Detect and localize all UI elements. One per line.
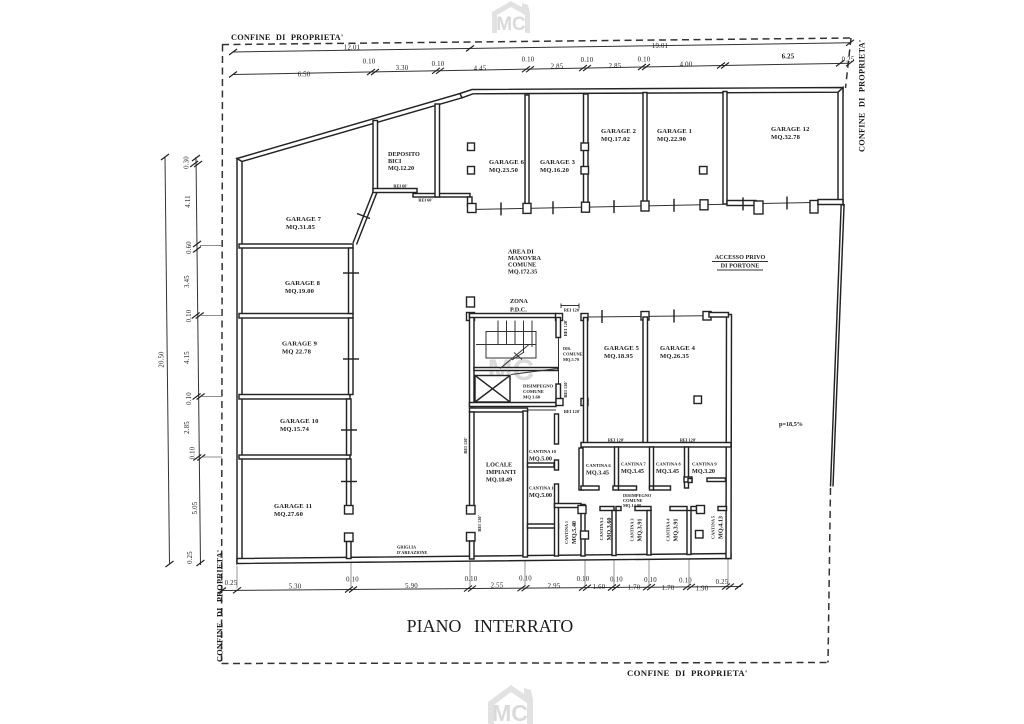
svg-text:ACCESSO PRIVO: ACCESSO PRIVO [715,254,766,261]
svg-text:MQ.16.20: MQ.16.20 [540,167,570,174]
svg-text:COMUNE: COMUNE [563,352,583,357]
svg-text:1.70: 1.70 [662,585,675,592]
svg-text:5.90: 5.90 [405,583,418,590]
svg-text:0.10: 0.10 [638,57,651,64]
svg-text:2.85: 2.85 [551,64,564,71]
svg-text:MQ.17.02: MQ.17.02 [601,136,631,143]
svg-text:REI 120': REI 120' [477,515,482,531]
svg-text:MC: MC [496,14,526,35]
svg-text:MQ.15.74: MQ.15.74 [280,426,310,433]
svg-text:1.90: 1.90 [696,586,709,593]
svg-text:CONFINE DI PROPRIETA': CONFINE DI PROPRIETA' [627,668,748,678]
svg-text:GRIGLIA: GRIGLIA [397,545,417,550]
svg-text:4.00: 4.00 [680,62,693,69]
svg-text:p=18,5%: p=18,5% [779,421,803,428]
svg-text:MQ.3.20: MQ.3.20 [692,468,715,475]
svg-text:MQ.19.00: MQ.19.00 [285,288,315,295]
svg-text:2.95: 2.95 [548,583,561,590]
svg-text:MQ.3.91: MQ.3.91 [673,518,680,541]
svg-text:MQ.5.70: MQ.5.70 [563,357,579,362]
svg-text:0.10: 0.10 [679,578,692,585]
svg-text:0.10: 0.10 [577,576,590,583]
svg-text:19.01: 19.01 [652,43,668,50]
svg-text:MQ.3.45: MQ.3.45 [621,468,644,475]
svg-text:1.60: 1.60 [593,584,606,591]
svg-text:PIANO INTERRATO: PIANO INTERRATO [407,616,574,636]
svg-text:12.01: 12.01 [344,45,360,52]
svg-text:BICI: BICI [388,158,402,165]
svg-text:0.10: 0.10 [363,59,376,66]
svg-text:GARAGE 12: GARAGE 12 [771,126,810,133]
svg-text:MQ.5.00: MQ.5.00 [529,492,552,499]
svg-text:GARAGE 5: GARAGE 5 [604,345,640,352]
svg-text:MQ 3.60: MQ 3.60 [523,395,541,400]
svg-text:REI 120': REI 120' [608,438,624,443]
svg-text:CANTINA 9: CANTINA 9 [692,462,717,467]
svg-text:GARAGE 2: GARAGE 2 [601,128,637,135]
svg-text:0.25: 0.25 [842,57,855,64]
svg-text:CANTINA 6: CANTINA 6 [586,463,611,468]
svg-text:0.60: 0.60 [186,241,193,254]
svg-text:6.25: 6.25 [782,54,795,61]
svg-text:DISIMPEGNO: DISIMPEGNO [523,384,554,389]
svg-text:0.10: 0.10 [644,577,657,584]
svg-text:MQ.172.35: MQ.172.35 [508,269,537,276]
svg-text:GARAGE 9: GARAGE 9 [282,341,318,348]
svg-text:3.45: 3.45 [184,275,191,288]
svg-text:0.30: 0.30 [184,156,191,169]
svg-text:0.25: 0.25 [225,580,238,587]
svg-text:REI 120': REI 120' [563,320,568,336]
svg-text:3.30: 3.30 [396,65,409,72]
svg-text:0.10: 0.10 [581,57,594,64]
svg-text:1.70: 1.70 [628,585,641,592]
svg-text:20.50: 20.50 [159,351,166,368]
svg-text:MQ.22.90: MQ.22.90 [657,136,687,143]
svg-text:MQ.23.50: MQ.23.50 [489,167,519,174]
svg-text:0.25: 0.25 [187,551,194,564]
svg-text:2.85: 2.85 [609,63,622,70]
svg-text:CANTINA 8: CANTINA 8 [656,462,681,467]
svg-text:0.10: 0.10 [186,392,193,405]
svg-text:0.10: 0.10 [346,577,359,584]
svg-text:MQ.5.00: MQ.5.00 [529,456,552,463]
svg-text:0.10: 0.10 [186,309,193,322]
svg-text:MQ 22.78: MQ 22.78 [282,349,312,356]
svg-text:MQ.32.78: MQ.32.78 [771,134,801,141]
svg-text:4.45: 4.45 [474,66,487,73]
svg-text:REI 120': REI 120' [463,437,468,453]
svg-text:IMPIANTI: IMPIANTI [486,469,516,476]
svg-text:GARAGE 11: GARAGE 11 [274,503,312,510]
svg-text:GARAGE 10: GARAGE 10 [280,418,319,425]
svg-text:CONFINE DI PROPRIETA': CONFINE DI PROPRIETA' [216,550,225,662]
svg-text:CANTINA 10: CANTINA 10 [529,449,557,454]
svg-text:0.10: 0.10 [522,57,535,64]
svg-text:0.25: 0.25 [716,579,729,586]
svg-text:REI 120': REI 120' [564,308,580,313]
svg-text:CANTINA 3: CANTINA 3 [630,518,635,541]
svg-text:DIS.: DIS. [563,346,571,351]
svg-text:6.50: 6.50 [298,72,311,79]
svg-text:ZONA: ZONA [510,298,528,305]
svg-text:REI 60': REI 60' [393,184,407,189]
svg-text:COMUNE: COMUNE [508,262,536,269]
svg-text:MQ.31.85: MQ.31.85 [286,224,316,231]
svg-text:5.05: 5.05 [192,501,199,514]
svg-text:CANTINA 2: CANTINA 2 [599,517,604,540]
svg-text:REI 120': REI 120' [680,438,696,443]
svg-text:GARAGE 4: GARAGE 4 [660,345,696,352]
svg-text:2.55: 2.55 [491,583,504,590]
svg-text:4.15: 4.15 [184,351,191,364]
svg-text:P.D.C.: P.D.C. [510,307,527,314]
svg-text:D'AREAZIONE: D'AREAZIONE [397,550,427,555]
svg-text:MQ.3.45: MQ.3.45 [656,468,679,475]
svg-text:0.10: 0.10 [519,576,532,583]
svg-text:4.11: 4.11 [185,195,192,207]
svg-text:MQ.26.35: MQ.26.35 [660,353,690,360]
svg-text:MQ.18.95: MQ.18.95 [604,353,634,360]
svg-text:GARAGE 7: GARAGE 7 [286,216,322,223]
svg-text:2.85: 2.85 [184,421,191,434]
svg-text:REI 60': REI 60' [418,198,432,203]
svg-text:MQ.3.91: MQ.3.91 [637,518,644,541]
svg-text:MQ.18.49: MQ.18.49 [486,477,512,484]
svg-text:MQ.4.13: MQ.4.13 [718,516,725,539]
svg-text:GARAGE 8: GARAGE 8 [285,280,321,287]
svg-text:MQ.27.60: MQ.27.60 [274,511,304,518]
svg-text:CANTINA 4: CANTINA 4 [666,518,671,542]
svg-text:CANTINA 5: CANTINA 5 [711,516,716,539]
svg-text:LOCALE: LOCALE [486,462,512,469]
svg-text:MQ.12.20: MQ.12.20 [388,165,414,172]
svg-text:DI PORTONE: DI PORTONE [721,263,760,270]
svg-text:MC: MC [492,700,528,724]
svg-text:0.10: 0.10 [465,576,478,583]
svg-text:0.10: 0.10 [610,577,623,584]
svg-text:GARAGE 1: GARAGE 1 [657,128,692,135]
svg-text:COMUNE: COMUNE [523,389,544,394]
svg-text:CONFINE DI PROPRIETA': CONFINE DI PROPRIETA' [231,33,343,42]
svg-text:MQ.3.45: MQ.3.45 [586,470,609,477]
svg-text:GARAGE 3: GARAGE 3 [540,159,576,166]
svg-text:DEPOSITO: DEPOSITO [388,151,420,158]
svg-text:CANTINA 1: CANTINA 1 [564,521,569,544]
svg-text:GARAGE 6: GARAGE 6 [489,159,525,166]
svg-text:0.10: 0.10 [432,61,445,68]
svg-text:MQ.5.40: MQ.5.40 [571,521,578,544]
svg-text:5.30: 5.30 [289,584,302,591]
svg-text:CONFINE DI PROPRIETA': CONFINE DI PROPRIETA' [858,40,867,152]
svg-text:REI 120': REI 120' [564,409,580,414]
svg-text:REI 120': REI 120' [563,381,568,397]
svg-text:CANTINA 11: CANTINA 11 [529,486,556,491]
svg-text:0.10: 0.10 [190,446,197,459]
svg-text:CANTINA 7: CANTINA 7 [621,462,646,467]
